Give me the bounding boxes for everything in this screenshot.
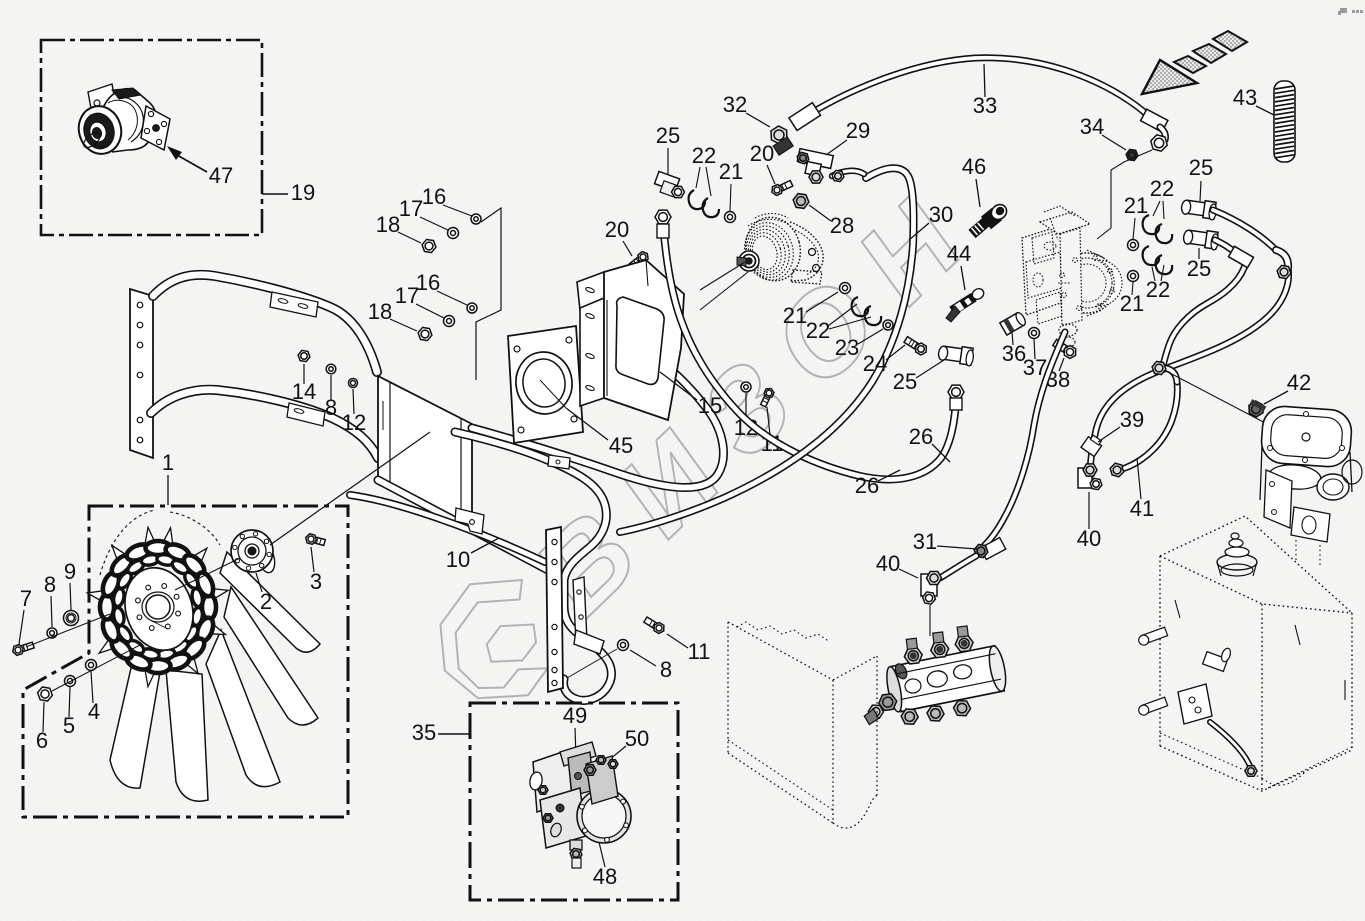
svg-text:39: 39: [1120, 407, 1144, 432]
svg-text:32: 32: [723, 92, 747, 117]
svg-text:21: 21: [783, 303, 807, 328]
svg-text:25: 25: [1187, 256, 1211, 281]
svg-text:41: 41: [1130, 496, 1154, 521]
svg-text:34: 34: [1080, 114, 1104, 139]
svg-text:21: 21: [719, 159, 743, 184]
svg-text:28: 28: [830, 213, 854, 238]
svg-text:11: 11: [688, 639, 711, 664]
svg-text:20: 20: [605, 217, 629, 242]
svg-text:47: 47: [209, 163, 233, 188]
svg-text:6: 6: [36, 728, 48, 753]
svg-text:30: 30: [929, 202, 953, 227]
svg-text:22: 22: [692, 143, 716, 168]
svg-text:23: 23: [835, 335, 859, 360]
svg-text:26: 26: [855, 473, 879, 498]
svg-text:44: 44: [947, 241, 971, 266]
svg-text:17: 17: [399, 196, 423, 221]
svg-text:25: 25: [893, 369, 917, 394]
svg-text:21: 21: [1124, 193, 1148, 218]
svg-text:31: 31: [913, 529, 937, 554]
svg-text:4: 4: [88, 699, 100, 724]
svg-text:7: 7: [20, 586, 32, 611]
svg-text:50: 50: [625, 726, 649, 751]
svg-text:8: 8: [660, 657, 672, 682]
svg-text:17: 17: [395, 283, 419, 308]
svg-text:40: 40: [1077, 526, 1101, 551]
svg-text:29: 29: [846, 118, 870, 143]
svg-text:49: 49: [563, 703, 587, 728]
svg-text:9: 9: [64, 559, 76, 584]
svg-text:26: 26: [909, 424, 933, 449]
svg-text:24: 24: [863, 351, 887, 376]
svg-text:25: 25: [1189, 155, 1213, 180]
svg-text:22: 22: [1146, 277, 1170, 302]
svg-text:18: 18: [376, 212, 400, 237]
svg-text:16: 16: [416, 270, 440, 295]
svg-text:16: 16: [422, 184, 446, 209]
svg-text:10: 10: [446, 547, 470, 572]
svg-text:40: 40: [876, 551, 900, 576]
svg-text:3: 3: [310, 569, 322, 594]
svg-text:8: 8: [44, 572, 56, 597]
svg-text:42: 42: [1287, 370, 1311, 395]
svg-text:20: 20: [750, 141, 774, 166]
svg-text:48: 48: [593, 864, 617, 889]
svg-text:15: 15: [698, 393, 722, 418]
svg-text:35: 35: [412, 720, 436, 745]
svg-text:2: 2: [260, 589, 272, 614]
svg-text:22: 22: [806, 318, 830, 343]
svg-text:22: 22: [1150, 176, 1174, 201]
svg-text:1: 1: [162, 450, 174, 475]
svg-text:25: 25: [656, 123, 680, 148]
svg-text:46: 46: [962, 154, 986, 179]
svg-text:43: 43: [1233, 85, 1257, 110]
svg-text:19: 19: [291, 180, 315, 205]
svg-text:18: 18: [368, 299, 392, 324]
svg-text:45: 45: [609, 433, 633, 458]
